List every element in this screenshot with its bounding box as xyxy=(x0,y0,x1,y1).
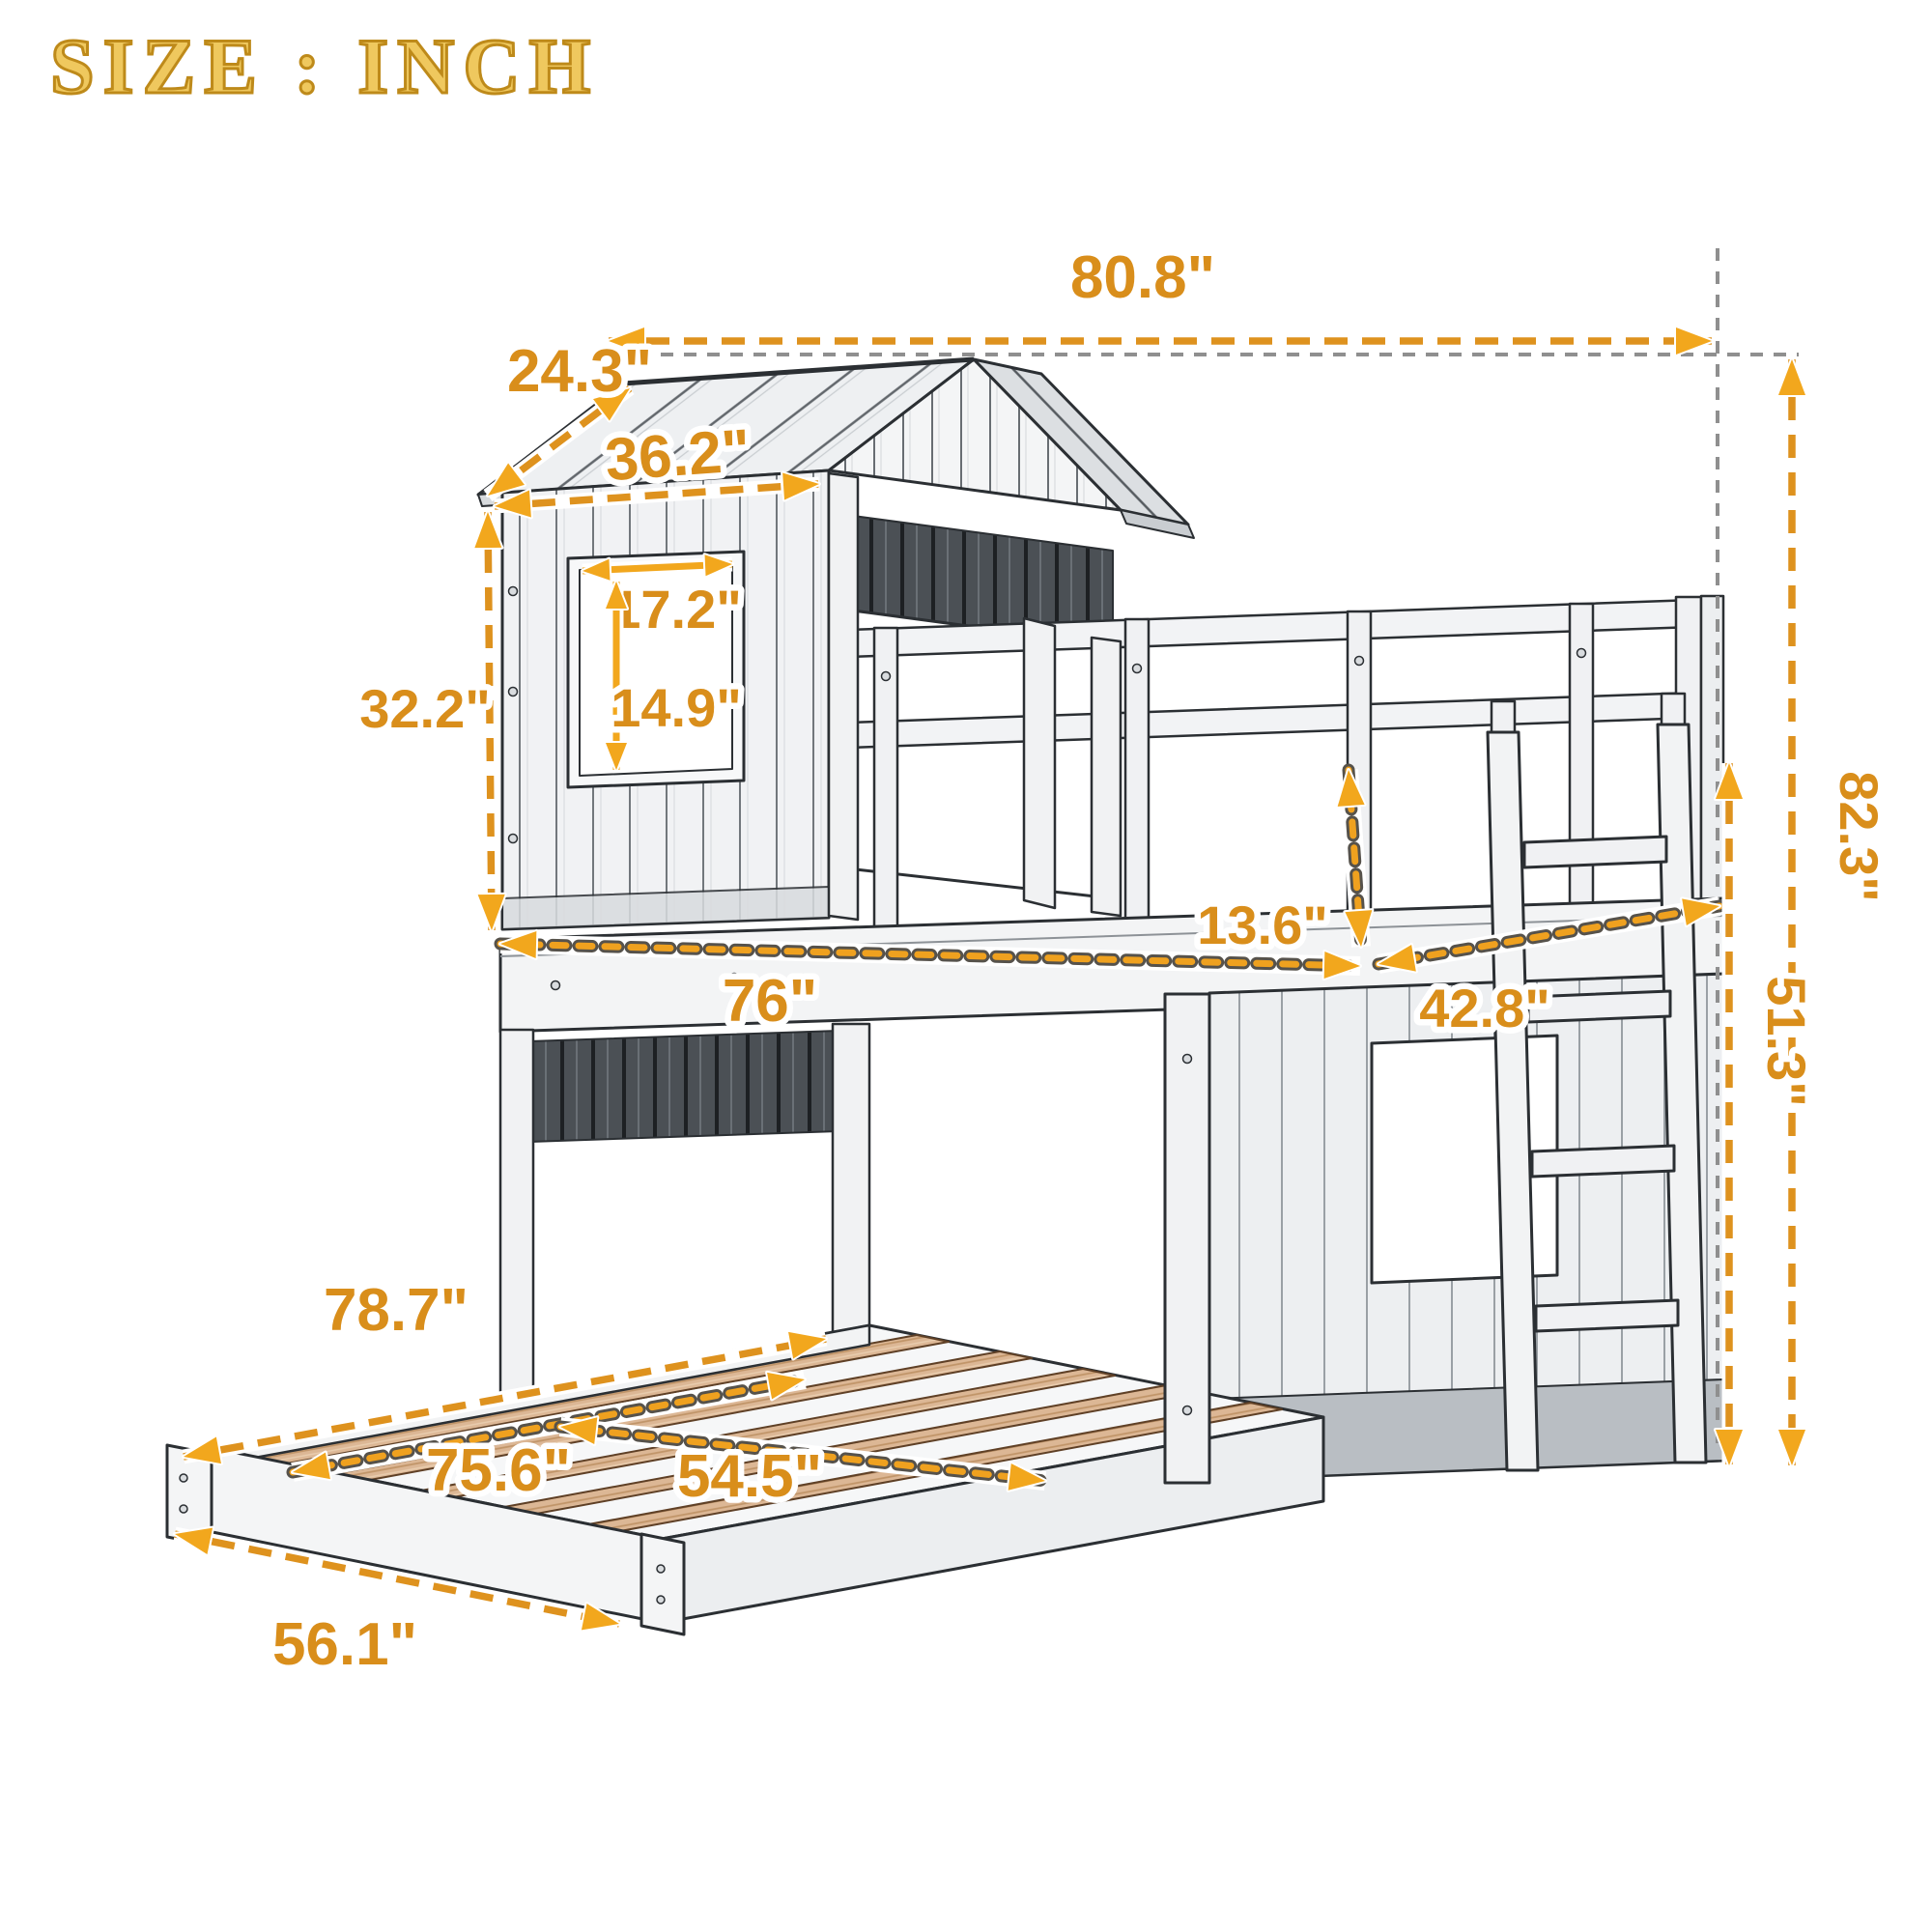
gable-frame-right xyxy=(1092,638,1121,916)
screw xyxy=(180,1505,187,1513)
screw xyxy=(552,981,560,990)
dim-32-2-label: 32.2" xyxy=(359,678,491,739)
arrowhead xyxy=(1778,1430,1805,1465)
dim-32-2: 32.2" xyxy=(359,512,504,930)
gable-frame-left xyxy=(829,473,858,920)
dim-51-3-label: 51.3" xyxy=(1756,976,1817,1107)
screw xyxy=(180,1474,187,1482)
under-loft-slat-band xyxy=(529,1030,867,1142)
screw xyxy=(1183,1406,1192,1415)
front-left-leg xyxy=(500,1030,533,1428)
dim-80-8: 80.8" xyxy=(609,244,1712,355)
ladder-rung xyxy=(1532,1146,1674,1177)
dim-78-7-label: 78.7" xyxy=(324,1277,469,1344)
ladder-rung xyxy=(1524,837,1666,867)
screw xyxy=(1355,657,1364,666)
arrowhead xyxy=(1676,327,1712,355)
screw xyxy=(657,1596,665,1604)
dim-56-1-label: 56.1" xyxy=(272,1611,417,1678)
dim-13-6-label: 13.6" xyxy=(1197,895,1328,955)
bed-diagram: 80.8"24.3"36.2"17.2"14.9"32.2"76"13.6"42… xyxy=(0,0,1932,1932)
dim-82-3: 82.3" xyxy=(1778,359,1889,1465)
dim-54-5-label: 54.5" xyxy=(677,1443,822,1510)
ladder-hook xyxy=(1662,694,1685,726)
gable-center-post xyxy=(1024,618,1055,908)
page-title: SIZE : INCH xyxy=(50,21,599,112)
screw xyxy=(1577,649,1586,658)
dim-51-3: 51.3" xyxy=(1716,763,1817,1465)
dim-80-8-label: 80.8" xyxy=(1070,244,1215,311)
screw xyxy=(882,672,891,681)
dim-76-label: 76" xyxy=(723,968,817,1035)
ladder-hook xyxy=(1492,701,1515,734)
dim-75-6-label: 75.6" xyxy=(426,1437,571,1504)
arrowhead xyxy=(474,512,501,548)
screw xyxy=(509,587,518,596)
arrowhead xyxy=(1778,359,1805,395)
ladder-rung xyxy=(1536,1300,1678,1331)
screw xyxy=(657,1565,665,1573)
screw xyxy=(509,835,518,843)
dim-42-8-label: 42.8" xyxy=(1419,978,1550,1038)
arrowhead xyxy=(478,895,505,930)
screw xyxy=(1133,665,1142,673)
dim-36-2-label: 36.2" xyxy=(603,417,753,494)
guardrail-end-post xyxy=(1701,596,1723,909)
bed-corner-post xyxy=(641,1534,684,1634)
dim-17-2-label: 17.2" xyxy=(611,579,742,639)
screw xyxy=(509,688,518,696)
dim-14-9-label: 14.9" xyxy=(611,677,742,738)
dim-82-3-label: 82.3" xyxy=(1829,771,1889,902)
dim-24-3-label: 24.3" xyxy=(507,338,652,405)
screw xyxy=(1183,1055,1192,1064)
diagram-stage: 80.8"24.3"36.2"17.2"14.9"32.2"76"13.6"42… xyxy=(0,0,1932,1932)
